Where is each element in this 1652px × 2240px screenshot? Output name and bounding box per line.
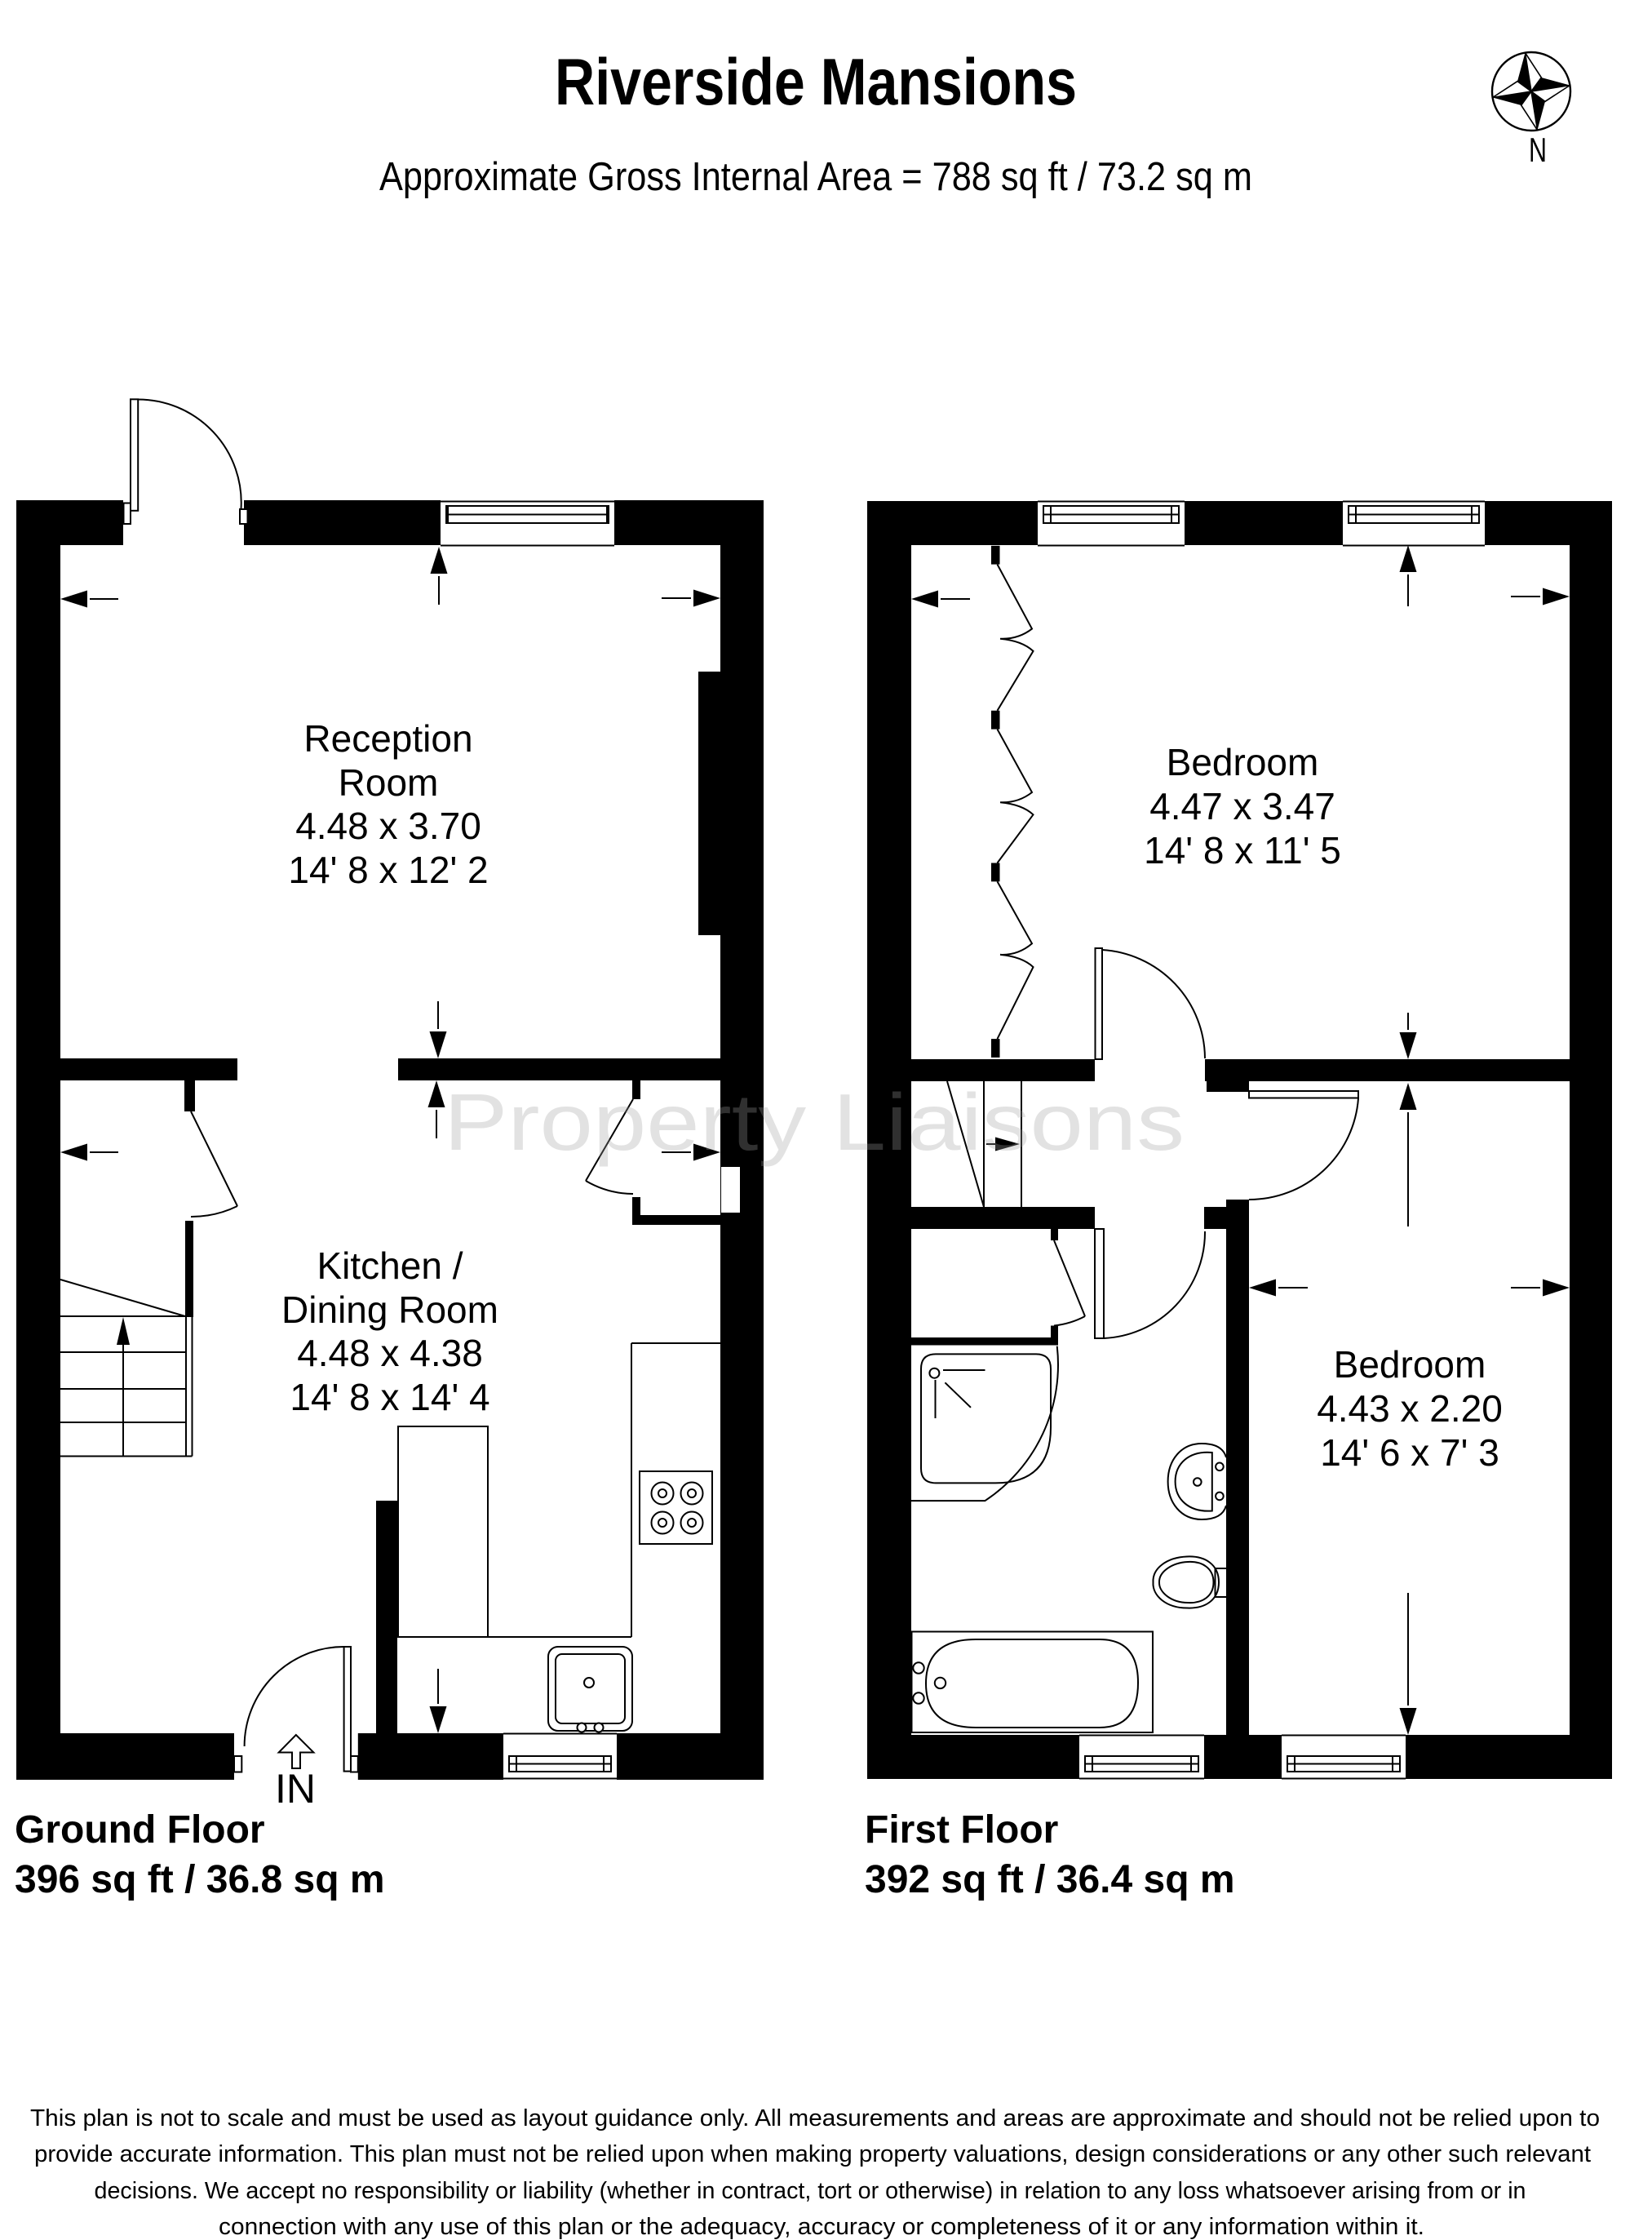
- svg-text:Bedroom: Bedroom: [1334, 1343, 1486, 1386]
- svg-text:Room: Room: [339, 761, 439, 804]
- svg-text:Kitchen /: Kitchen /: [317, 1244, 463, 1287]
- svg-text:decisions. We accept no respon: decisions. We accept no responsibility o…: [95, 2178, 1526, 2204]
- svg-text:4.48 x 3.70: 4.48 x 3.70: [295, 805, 481, 847]
- svg-text:14' 8 x 14' 4: 14' 8 x 14' 4: [290, 1376, 489, 1418]
- svg-text:4.43 x 2.20: 4.43 x 2.20: [1317, 1387, 1503, 1430]
- svg-text:14' 8 x 12' 2: 14' 8 x 12' 2: [288, 849, 488, 891]
- svg-text:392 sq ft / 36.4 sq m: 392 sq ft / 36.4 sq m: [865, 1858, 1235, 1901]
- svg-text:N: N: [1529, 131, 1547, 169]
- svg-text:4.47 x 3.47: 4.47 x 3.47: [1149, 785, 1335, 827]
- svg-text:4.48 x 4.38: 4.48 x 4.38: [297, 1332, 483, 1374]
- svg-text:Property Liaisons: Property Liaisons: [444, 1077, 1185, 1167]
- svg-text:Ground Floor: Ground Floor: [15, 1808, 265, 1852]
- svg-text:connection with any use of thi: connection with any use of this plan or …: [219, 2214, 1424, 2240]
- svg-text:Riverside Mansions: Riverside Mansions: [555, 46, 1077, 119]
- svg-text:Reception: Reception: [303, 717, 472, 760]
- svg-text:Approximate Gross Internal Are: Approximate Gross Internal Area = 788 sq…: [379, 155, 1252, 199]
- svg-text:396 sq ft / 36.8 sq m: 396 sq ft / 36.8 sq m: [15, 1858, 385, 1901]
- svg-text:14' 8 x 11' 5: 14' 8 x 11' 5: [1144, 829, 1341, 872]
- svg-text:provide accurate information.: provide accurate information. This plan …: [34, 2141, 1591, 2167]
- svg-text:IN: IN: [275, 1766, 316, 1812]
- svg-text:Dining Room: Dining Room: [281, 1289, 498, 1331]
- svg-text:This plan is not to scale and: This plan is not to scale and must be us…: [30, 2105, 1600, 2131]
- svg-text:Bedroom: Bedroom: [1167, 741, 1319, 783]
- svg-text:14' 6 x 7' 3: 14' 6 x 7' 3: [1320, 1431, 1499, 1474]
- svg-text:First Floor: First Floor: [865, 1808, 1058, 1852]
